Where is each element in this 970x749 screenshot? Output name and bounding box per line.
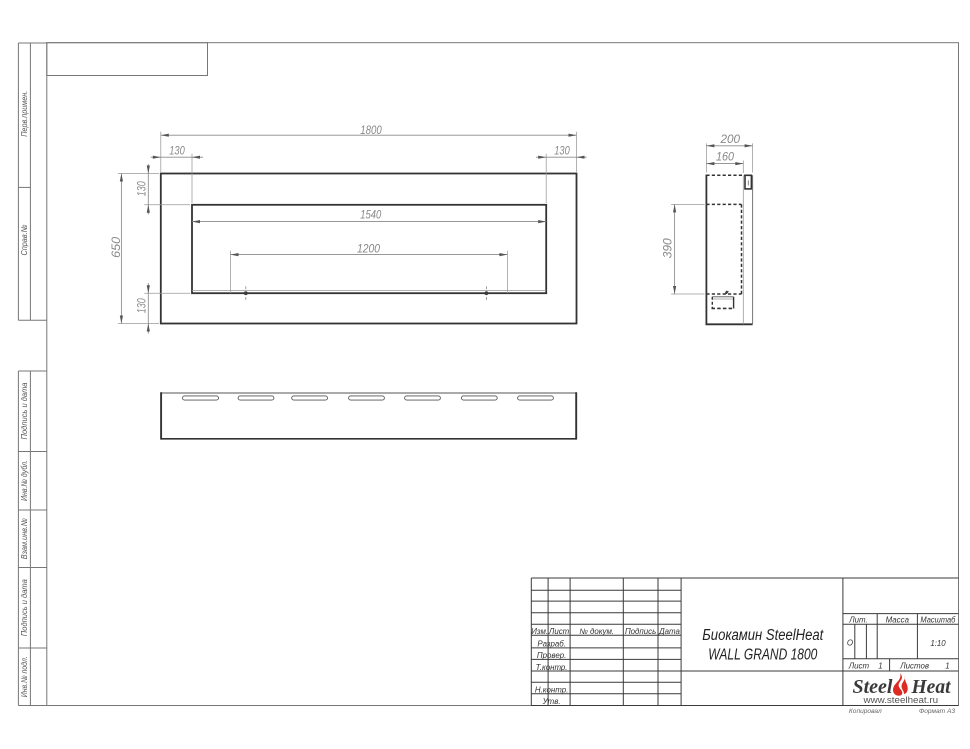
svg-text:Разраб.: Разраб. <box>537 640 566 649</box>
svg-text:200: 200 <box>720 132 741 146</box>
svg-text:160: 160 <box>716 149 734 163</box>
svg-text:650: 650 <box>109 237 123 258</box>
svg-text:Подпись и дата: Подпись и дата <box>19 382 29 439</box>
svg-text:Масса: Масса <box>886 615 910 624</box>
svg-text:WALL GRAND 1800: WALL GRAND 1800 <box>708 646 817 663</box>
svg-text:Провер.: Провер. <box>537 651 566 660</box>
svg-text:Взам.инв.№: Взам.инв.№ <box>19 518 29 559</box>
svg-text:Копировал: Копировал <box>849 708 882 715</box>
svg-text:Перв.примен.: Перв.примен. <box>19 91 29 137</box>
svg-text:390: 390 <box>660 238 674 258</box>
svg-text:130: 130 <box>135 181 149 196</box>
svg-text:1200: 1200 <box>357 241 380 255</box>
svg-text:Лист: Лист <box>548 627 570 636</box>
svg-text:Изм.: Изм. <box>531 627 548 636</box>
svg-text:Лит.: Лит. <box>848 615 867 624</box>
svg-text:№ докум.: № докум. <box>579 627 614 636</box>
svg-text:Дата: Дата <box>658 627 680 636</box>
svg-text:Масштаб: Масштаб <box>920 615 956 624</box>
svg-text:Справ.№: Справ.№ <box>19 225 29 256</box>
svg-text:1: 1 <box>878 662 882 671</box>
svg-text:1800: 1800 <box>360 123 382 137</box>
svg-text:Формат А3: Формат А3 <box>919 708 955 715</box>
svg-text:130: 130 <box>554 143 570 157</box>
svg-text:Лист: Лист <box>848 662 870 671</box>
svg-text:1: 1 <box>945 662 949 671</box>
svg-text:1540: 1540 <box>360 207 381 221</box>
svg-text:Листов: Листов <box>899 662 929 671</box>
svg-text:Подпись и дата: Подпись и дата <box>19 579 29 636</box>
svg-text:Н.контр.: Н.контр. <box>535 686 568 695</box>
svg-text:Утв.: Утв. <box>542 697 561 706</box>
svg-text:130: 130 <box>169 143 185 157</box>
svg-text:Т.контр.: Т.контр. <box>536 663 568 672</box>
svg-text:Подпись: Подпись <box>625 627 656 636</box>
svg-text:1:10: 1:10 <box>930 639 946 648</box>
svg-text:О: О <box>847 639 853 648</box>
svg-text:www.steelheat.ru: www.steelheat.ru <box>863 695 939 706</box>
svg-text:130: 130 <box>135 298 149 313</box>
svg-text:Инв.№ подл.: Инв.№ подл. <box>19 656 29 697</box>
svg-text:Биокамин SteelHeat: Биокамин SteelHeat <box>702 627 824 644</box>
svg-text:Инв.№ дубл.: Инв.№ дубл. <box>19 460 29 501</box>
